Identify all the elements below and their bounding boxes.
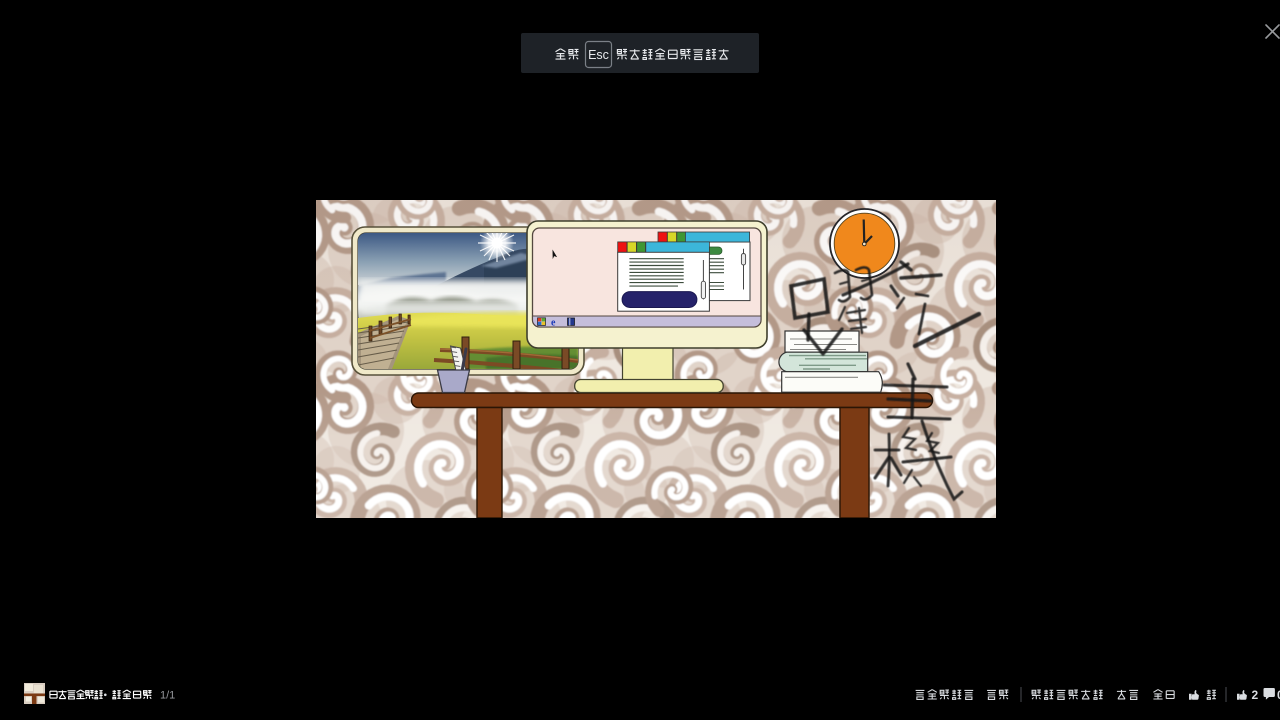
svg-text:Esc: Esc bbox=[588, 48, 609, 62]
svg-text:1/1: 1/1 bbox=[160, 690, 175, 702]
svg-text:2: 2 bbox=[1252, 688, 1259, 702]
svg-text:e: e bbox=[551, 317, 556, 328]
